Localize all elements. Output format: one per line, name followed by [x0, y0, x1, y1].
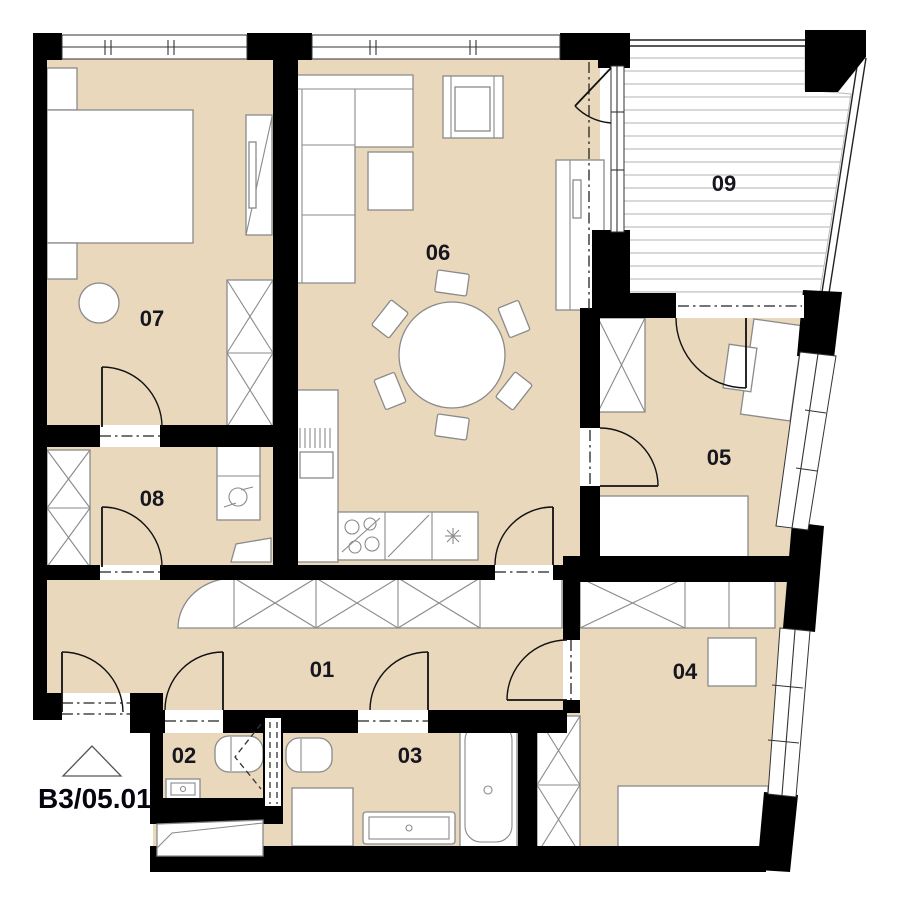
nightstand — [47, 243, 77, 279]
entrance-marker-triangle — [63, 746, 121, 776]
ottoman — [368, 152, 413, 210]
shaft — [157, 820, 263, 856]
bed — [598, 496, 748, 560]
dining-chair — [435, 414, 470, 440]
room-label-06: 06 — [426, 240, 450, 265]
room-label-04: 04 — [673, 659, 698, 684]
unit-label: B3/05.01 — [38, 783, 152, 814]
sliding-wardrobe — [246, 115, 272, 235]
oven — [300, 452, 333, 478]
room-label-08: 08 — [140, 486, 164, 511]
room-label-09: 09 — [712, 171, 736, 196]
floor-plan-svg: 01 02 03 04 05 06 07 08 09 B3/05.01 — [0, 0, 901, 898]
hand-basin — [166, 779, 200, 799]
floor-plan: 01 02 03 04 05 06 07 08 09 B3/05.01 — [0, 0, 901, 898]
pocket-door-slot — [265, 718, 281, 806]
room-label-07: 07 — [140, 306, 164, 331]
double-bed — [47, 110, 193, 243]
side-table — [708, 638, 756, 686]
room-label-01: 01 — [310, 657, 334, 682]
wardrobe-band — [580, 578, 775, 628]
bed — [618, 786, 768, 848]
dining-chair — [435, 270, 470, 296]
room-label-03: 03 — [398, 743, 422, 768]
wardrobe — [537, 716, 580, 854]
fridge-vents — [300, 428, 330, 448]
freezer-symbol — [445, 528, 461, 544]
closet-shelves — [47, 450, 90, 567]
vanity-sink — [363, 812, 455, 844]
wardrobe — [227, 280, 273, 427]
wardrobe — [598, 318, 645, 412]
kitchen-tall-unit — [295, 390, 338, 562]
kitchen-counter — [338, 512, 478, 560]
washing-machine — [292, 788, 353, 846]
terrace-door-glazing — [611, 66, 624, 232]
toilet — [286, 738, 332, 772]
desk-chair — [723, 344, 757, 391]
nightstand — [47, 68, 77, 110]
toilet — [215, 736, 263, 772]
armchair — [443, 76, 503, 138]
round-table — [79, 283, 119, 323]
room-label-05: 05 — [707, 445, 731, 470]
window-room-07 — [62, 35, 247, 59]
room-label-02: 02 — [172, 743, 196, 768]
dining-table — [399, 302, 505, 408]
window-room-06 — [312, 35, 560, 59]
hallway-wardrobe — [178, 578, 562, 628]
bathtub — [460, 718, 517, 848]
